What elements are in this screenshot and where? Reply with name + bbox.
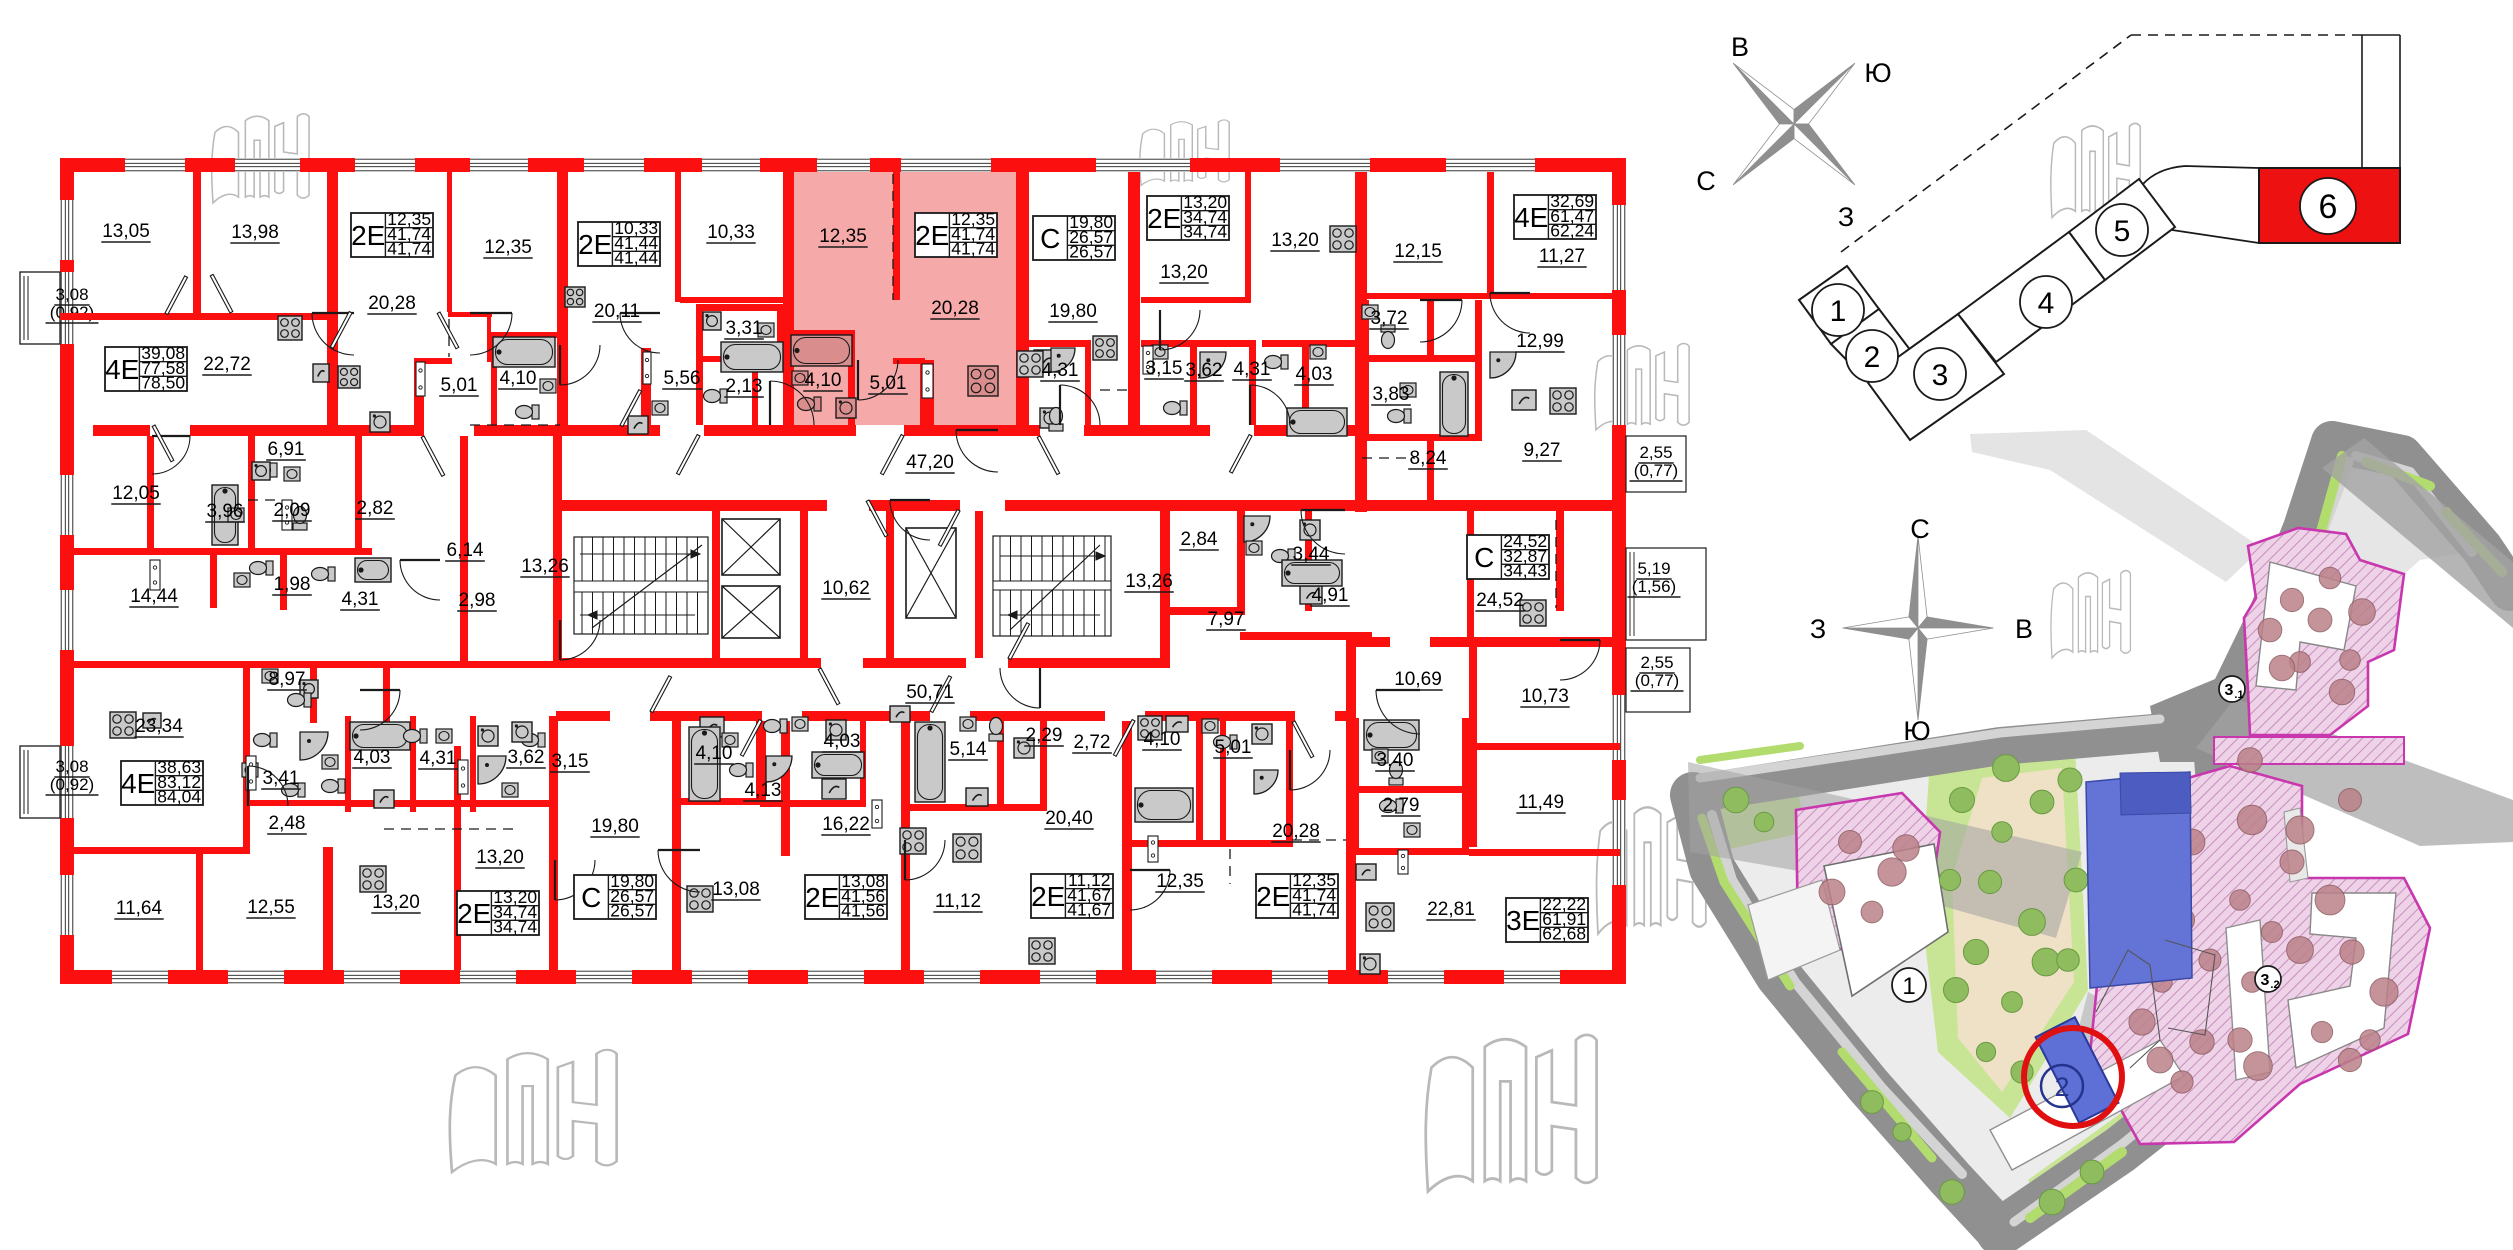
svg-text:(0,77): (0,77) [1635,671,1679,690]
svg-text:2Е: 2Е [1147,203,1181,234]
svg-text:19,80: 19,80 [1049,301,1097,322]
svg-text:4,10: 4,10 [500,368,537,389]
svg-text:13,20: 13,20 [476,847,524,868]
svg-text:13,26: 13,26 [1125,571,1173,592]
svg-text:2,79: 2,79 [1383,795,1420,816]
svg-text:22,72: 22,72 [203,354,251,375]
svg-text:4,31: 4,31 [420,748,457,769]
svg-text:2Е: 2Е [1031,881,1065,912]
svg-text:3,15: 3,15 [552,751,589,772]
svg-text:6,91: 6,91 [268,439,305,460]
svg-text:2,84: 2,84 [1181,529,1218,550]
svg-text:С: С [581,882,601,913]
svg-text:2Е: 2Е [351,220,385,251]
svg-text:4,10: 4,10 [805,370,842,391]
svg-text:.2: .2 [2270,979,2279,991]
svg-text:11,49: 11,49 [1518,792,1564,813]
svg-text:2Е: 2Е [805,882,839,913]
svg-text:4Е: 4Е [105,354,139,385]
svg-text:4: 4 [2038,287,2055,320]
svg-text:5,01: 5,01 [1215,737,1252,758]
svg-text:19,80: 19,80 [591,816,639,837]
svg-text:10,33: 10,33 [707,222,755,243]
svg-text:5: 5 [2114,215,2131,248]
svg-text:2: 2 [1864,341,1881,374]
svg-text:3,83: 3,83 [1373,384,1410,405]
svg-text:41,74: 41,74 [951,239,995,259]
svg-text:6,14: 6,14 [447,540,484,561]
svg-text:8,24: 8,24 [1410,448,1447,469]
svg-text:5,56: 5,56 [664,368,701,389]
svg-text:13,98: 13,98 [231,222,279,243]
svg-text:13,20: 13,20 [372,892,420,913]
svg-text:34,74: 34,74 [493,917,537,937]
svg-text:2Е: 2Е [578,229,612,260]
svg-text:12,35: 12,35 [1156,871,1204,892]
svg-text:С: С [1696,166,1716,196]
svg-text:78,50: 78,50 [141,373,185,393]
svg-text:3,08: 3,08 [55,285,88,304]
svg-text:4,13: 4,13 [745,780,782,801]
svg-text:2Е: 2Е [457,898,491,929]
svg-text:23,34: 23,34 [135,716,183,737]
svg-text:2: 2 [2054,1072,2069,1102]
svg-text:З: З [1838,202,1854,232]
svg-text:Ю: Ю [1903,716,1930,746]
svg-text:9,27: 9,27 [1524,440,1561,461]
svg-text:3Е: 3Е [1506,905,1540,936]
svg-text:41,74: 41,74 [387,239,431,259]
svg-text:34,74: 34,74 [1183,222,1227,242]
svg-text:3: 3 [1932,359,1949,392]
svg-text:20,28: 20,28 [931,298,979,319]
svg-text:4,10: 4,10 [1144,729,1181,750]
svg-text:12,99: 12,99 [1516,331,1564,352]
svg-text:12,55: 12,55 [247,897,295,918]
svg-text:11,64: 11,64 [116,898,163,919]
svg-text:4,03: 4,03 [354,747,391,768]
svg-text:20,28: 20,28 [1272,821,1320,842]
svg-text:1: 1 [1830,295,1847,328]
svg-text:47,20: 47,20 [906,452,954,473]
svg-text:10,73: 10,73 [1521,686,1569,707]
svg-text:12,35: 12,35 [819,226,867,247]
svg-text:3,41: 3,41 [263,768,300,789]
svg-text:26,57: 26,57 [1069,242,1113,262]
svg-text:5,19: 5,19 [1637,559,1670,578]
svg-text:4,31: 4,31 [342,589,379,610]
svg-text:26,57: 26,57 [610,901,654,921]
svg-text:Ю: Ю [1864,58,1891,88]
svg-text:3: 3 [2225,682,2234,699]
svg-text:84,04: 84,04 [157,787,201,807]
svg-text:11,27: 11,27 [1539,246,1585,267]
svg-text:3,62: 3,62 [508,747,545,768]
svg-text:2,55: 2,55 [1639,443,1672,462]
svg-text:6: 6 [2319,188,2338,226]
svg-text:(1,56): (1,56) [1632,577,1676,596]
svg-text:13,20: 13,20 [1271,230,1319,251]
svg-text:4,91: 4,91 [1312,585,1349,606]
svg-text:.1: .1 [2234,689,2243,701]
svg-text:3,31: 3,31 [726,318,763,339]
svg-text:В: В [1731,32,1749,62]
svg-text:2,13: 2,13 [726,376,763,397]
svg-text:1,98: 1,98 [274,574,311,595]
svg-text:13,08: 13,08 [712,879,760,900]
svg-text:3,62: 3,62 [1186,360,1223,381]
svg-text:2,72: 2,72 [1074,732,1111,753]
svg-text:13,20: 13,20 [1160,262,1208,283]
svg-text:10,69: 10,69 [1394,669,1442,690]
svg-text:2,48: 2,48 [269,813,306,834]
svg-text:4,10: 4,10 [696,743,733,764]
svg-text:4,31: 4,31 [1234,359,1271,380]
svg-text:50,71: 50,71 [906,682,954,703]
svg-text:5,01: 5,01 [870,373,907,394]
svg-text:2,09: 2,09 [274,500,311,521]
svg-text:41,74: 41,74 [1292,900,1336,920]
svg-text:14,44: 14,44 [130,586,178,607]
svg-text:4,03: 4,03 [824,731,861,752]
svg-text:2,82: 2,82 [357,498,394,519]
svg-text:16,22: 16,22 [822,814,870,835]
svg-text:С: С [1910,514,1930,544]
svg-text:3: 3 [2261,972,2270,989]
svg-text:3,40: 3,40 [1377,750,1414,771]
svg-text:62,68: 62,68 [1542,924,1586,944]
svg-text:12,35: 12,35 [484,237,532,258]
svg-text:3,96: 3,96 [207,501,244,522]
svg-text:2Е: 2Е [1256,881,1290,912]
svg-text:12,05: 12,05 [112,483,160,504]
svg-text:2,98: 2,98 [459,590,496,611]
svg-text:2Е: 2Е [915,220,949,251]
svg-text:3,08: 3,08 [55,757,88,776]
svg-text:4,03: 4,03 [1296,364,1333,385]
svg-text:3,44: 3,44 [1293,544,1330,565]
svg-text:8,97: 8,97 [269,669,306,690]
svg-text:10,62: 10,62 [822,578,870,599]
svg-text:4Е: 4Е [121,768,155,799]
svg-text:12,15: 12,15 [1394,241,1442,262]
svg-text:41,56: 41,56 [841,901,885,921]
svg-text:20,28: 20,28 [368,293,416,314]
svg-text:5,14: 5,14 [950,739,987,760]
svg-text:5,01: 5,01 [441,375,478,396]
svg-text:41,44: 41,44 [614,248,658,268]
svg-text:2,55: 2,55 [1640,653,1673,672]
svg-text:62,24: 62,24 [1550,221,1594,241]
svg-text:34,43: 34,43 [1503,561,1547,581]
svg-text:1: 1 [1902,973,1915,1000]
svg-text:20,40: 20,40 [1045,808,1093,829]
svg-text:2,29: 2,29 [1026,725,1063,746]
svg-text:(0,77): (0,77) [1634,461,1678,480]
svg-text:3,15: 3,15 [1146,358,1183,379]
svg-text:В: В [2015,614,2033,644]
svg-text:20,11: 20,11 [594,301,640,322]
svg-text:(0,92): (0,92) [50,775,94,794]
svg-text:13,05: 13,05 [102,221,150,242]
svg-text:4Е: 4Е [1514,202,1548,233]
svg-text:3,72: 3,72 [1371,308,1408,329]
svg-text:С: С [1040,223,1060,254]
svg-text:З: З [1810,614,1826,644]
svg-text:7,97: 7,97 [1208,609,1245,630]
svg-text:11,12: 11,12 [935,891,981,912]
svg-text:41,67: 41,67 [1067,900,1111,920]
svg-text:13,26: 13,26 [521,556,569,577]
svg-text:4,31: 4,31 [1042,360,1079,381]
svg-text:С: С [1474,542,1494,573]
svg-text:22,81: 22,81 [1427,899,1475,920]
svg-text:24,52: 24,52 [1476,590,1524,611]
